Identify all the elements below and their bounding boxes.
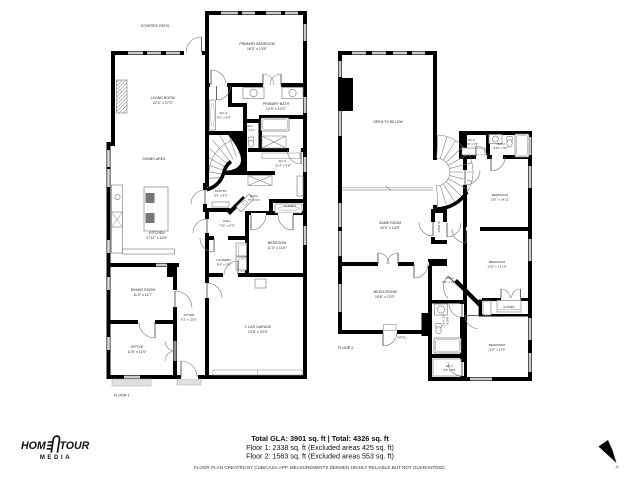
svg-text:CLOSET: CLOSET (503, 305, 515, 309)
svg-text:TOUR: TOUR (60, 440, 90, 452)
svg-text:PRIMARY BATH12'9" x 12'0": PRIMARY BATH12'9" x 12'0" (263, 102, 290, 111)
svg-text:Total GLA: 3901 sq. ft | Total: Total GLA: 3901 sq. ft | Total: 4326 sq.… (251, 434, 389, 443)
svg-text:FLOOR PLAN CREATED BY CUBICASA: FLOOR PLAN CREATED BY CUBICASA APP. MEAS… (194, 465, 446, 470)
svg-text:2 CAR GARAGE19'6" x 20'3": 2 CAR GARAGE19'6" x 20'3" (245, 325, 272, 334)
svg-text:FLOOR 2: FLOOR 2 (338, 346, 353, 350)
svg-text:ATTIC: ATTIC (398, 336, 408, 340)
svg-text:Floor 2: 1563 sq. ft (Excluded: Floor 2: 1563 sq. ft (Excluded areas 553… (246, 452, 394, 461)
svg-text:FLOOR 1: FLOOR 1 (114, 394, 129, 398)
svg-text:BEDROOM11'3" x 11'6": BEDROOM11'3" x 11'6" (267, 241, 287, 250)
svg-text:LIVING ROOM22'4" x 27'0": LIVING ROOM22'4" x 27'0" (151, 96, 175, 105)
svg-text:CLOSET: CLOSET (284, 204, 297, 208)
svg-text:CLOSET: CLOSET (437, 221, 441, 233)
svg-text:BEDROOM12'8" x 12'6": BEDROOM12'8" x 12'6" (488, 343, 506, 351)
svg-text:LAUNDRY8'4" x 7'6": LAUNDRY8'4" x 7'6" (217, 258, 232, 266)
svg-text:MEDIA: MEDIA (40, 455, 72, 461)
svg-text:HOM: HOM (21, 440, 47, 452)
svg-text:DINING ROOM11'0" x 11'7": DINING ROOM11'0" x 11'7" (131, 288, 156, 297)
svg-text:BEDROOM13'0" x 14'11": BEDROOM13'0" x 14'11" (490, 193, 509, 201)
svg-text:DINING AREA: DINING AREA (143, 157, 167, 161)
svg-text:BEDROOM13'0" x 12'10": BEDROOM13'0" x 12'10" (487, 260, 507, 268)
svg-text:COVERED PATIO: COVERED PATIO (141, 24, 170, 28)
svg-text:PANTRY8'3" x 6'9": PANTRY8'3" x 6'9" (214, 189, 228, 197)
svg-text:Floor 1: 2338 sq. ft (Excluded: Floor 1: 2338 sq. ft (Excluded areas 425… (246, 443, 394, 452)
svg-text:OPEN TO BELOW: OPEN TO BELOW (373, 120, 403, 124)
svg-text:MEDIA ROOM19'6" x 13'0": MEDIA ROOM19'6" x 13'0" (373, 290, 396, 299)
svg-text:GAME ROOM19'0" x 14'9": GAME ROOM19'0" x 14'9" (379, 221, 401, 230)
